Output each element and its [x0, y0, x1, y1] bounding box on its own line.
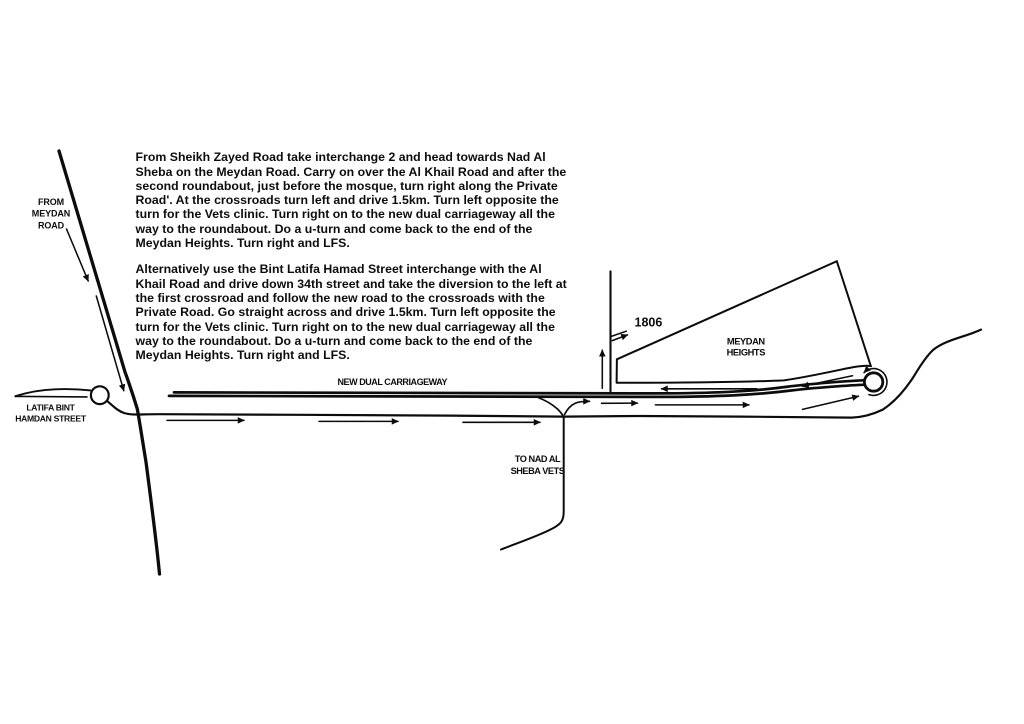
svg-text:TO NAD AL: TO NAD AL [515, 454, 561, 464]
svg-text:FROM: FROM [38, 197, 64, 207]
svg-text:MEYDAN: MEYDAN [727, 336, 765, 346]
svg-text:HEIGHTS: HEIGHTS [727, 348, 766, 358]
svg-text:NEW DUAL CARRIAGEWAY: NEW DUAL CARRIAGEWAY [338, 377, 448, 387]
svg-text:1806: 1806 [635, 316, 663, 330]
svg-text:HAMDAN STREET: HAMDAN STREET [15, 414, 87, 424]
svg-text:ROAD: ROAD [38, 220, 65, 230]
svg-text:LATIFA BINT: LATIFA BINT [26, 403, 75, 413]
svg-text:MEYDAN: MEYDAN [32, 209, 70, 219]
svg-text:SHEBA VETS: SHEBA VETS [511, 466, 565, 476]
